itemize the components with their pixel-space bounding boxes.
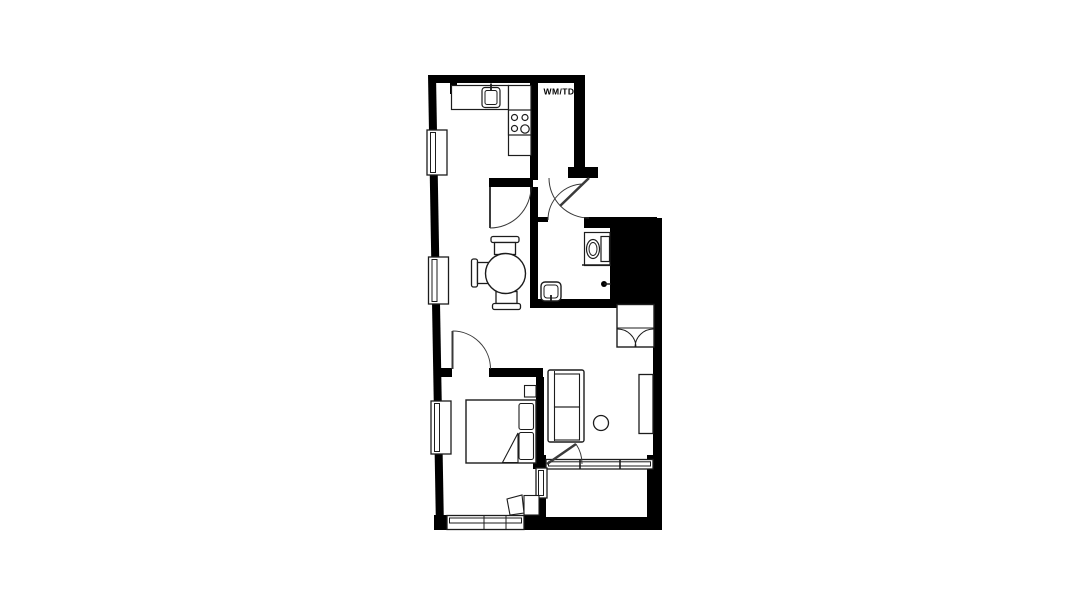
bathroom-sink [541, 282, 561, 301]
wall-bath-left [530, 187, 538, 308]
window-bedroom-bottom [447, 516, 524, 530]
wall-bottom-balcony [545, 517, 662, 530]
dining-table [486, 254, 526, 294]
service-shaft [610, 218, 657, 305]
dining-chair-bottom [493, 292, 521, 310]
sideboard [639, 375, 653, 434]
wall-bedroom-top-right [489, 368, 543, 377]
kitchen-sink [482, 84, 500, 108]
dining-chair-top [491, 237, 519, 255]
wall-wmtd-right [574, 83, 585, 167]
wall-top [429, 75, 585, 83]
desk-chair [507, 495, 524, 515]
floor-plan: WM/TD [0, 0, 1092, 614]
window-bedroom-left [431, 401, 451, 454]
pillow [519, 433, 534, 460]
window-bedroom-balcony [536, 468, 547, 498]
pillow [519, 404, 534, 430]
cooktop [509, 110, 532, 135]
window-balcony-band [546, 460, 653, 470]
wall-bedroom-top-left [434, 368, 452, 377]
wall-bedroom-living [536, 377, 544, 462]
floor-plan-canvas: WM/TD [0, 0, 1092, 614]
wmtd-label: WM/TD [543, 87, 574, 97]
desk [524, 496, 539, 516]
wall-kitchen-hall [489, 178, 533, 187]
window-kitchen [427, 130, 447, 175]
wardrobe [617, 305, 654, 348]
nightstand [525, 386, 537, 398]
wall-entry-step [568, 167, 598, 178]
sofa [548, 370, 584, 442]
window-dining [429, 257, 449, 304]
